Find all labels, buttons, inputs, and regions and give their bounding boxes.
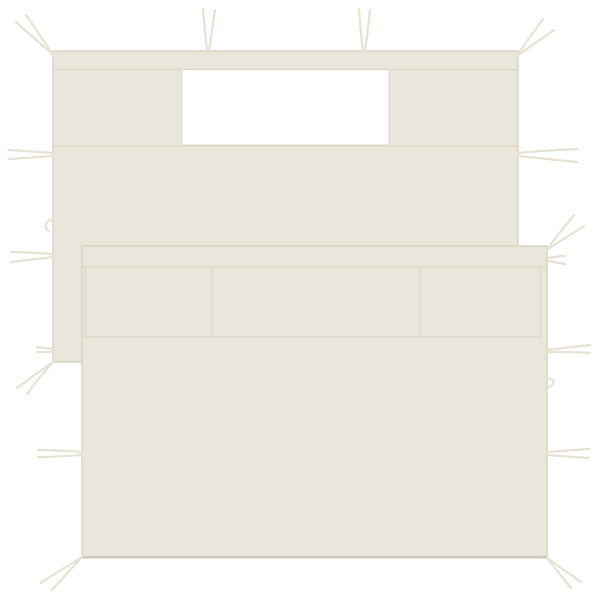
tie-string — [547, 352, 590, 353]
gazebo-sidewalls-illustration — [0, 0, 600, 600]
front-panel-fabric — [82, 246, 547, 558]
product-image — [0, 0, 600, 600]
front-sidewall — [38, 215, 590, 590]
back-panel-window — [182, 70, 389, 146]
